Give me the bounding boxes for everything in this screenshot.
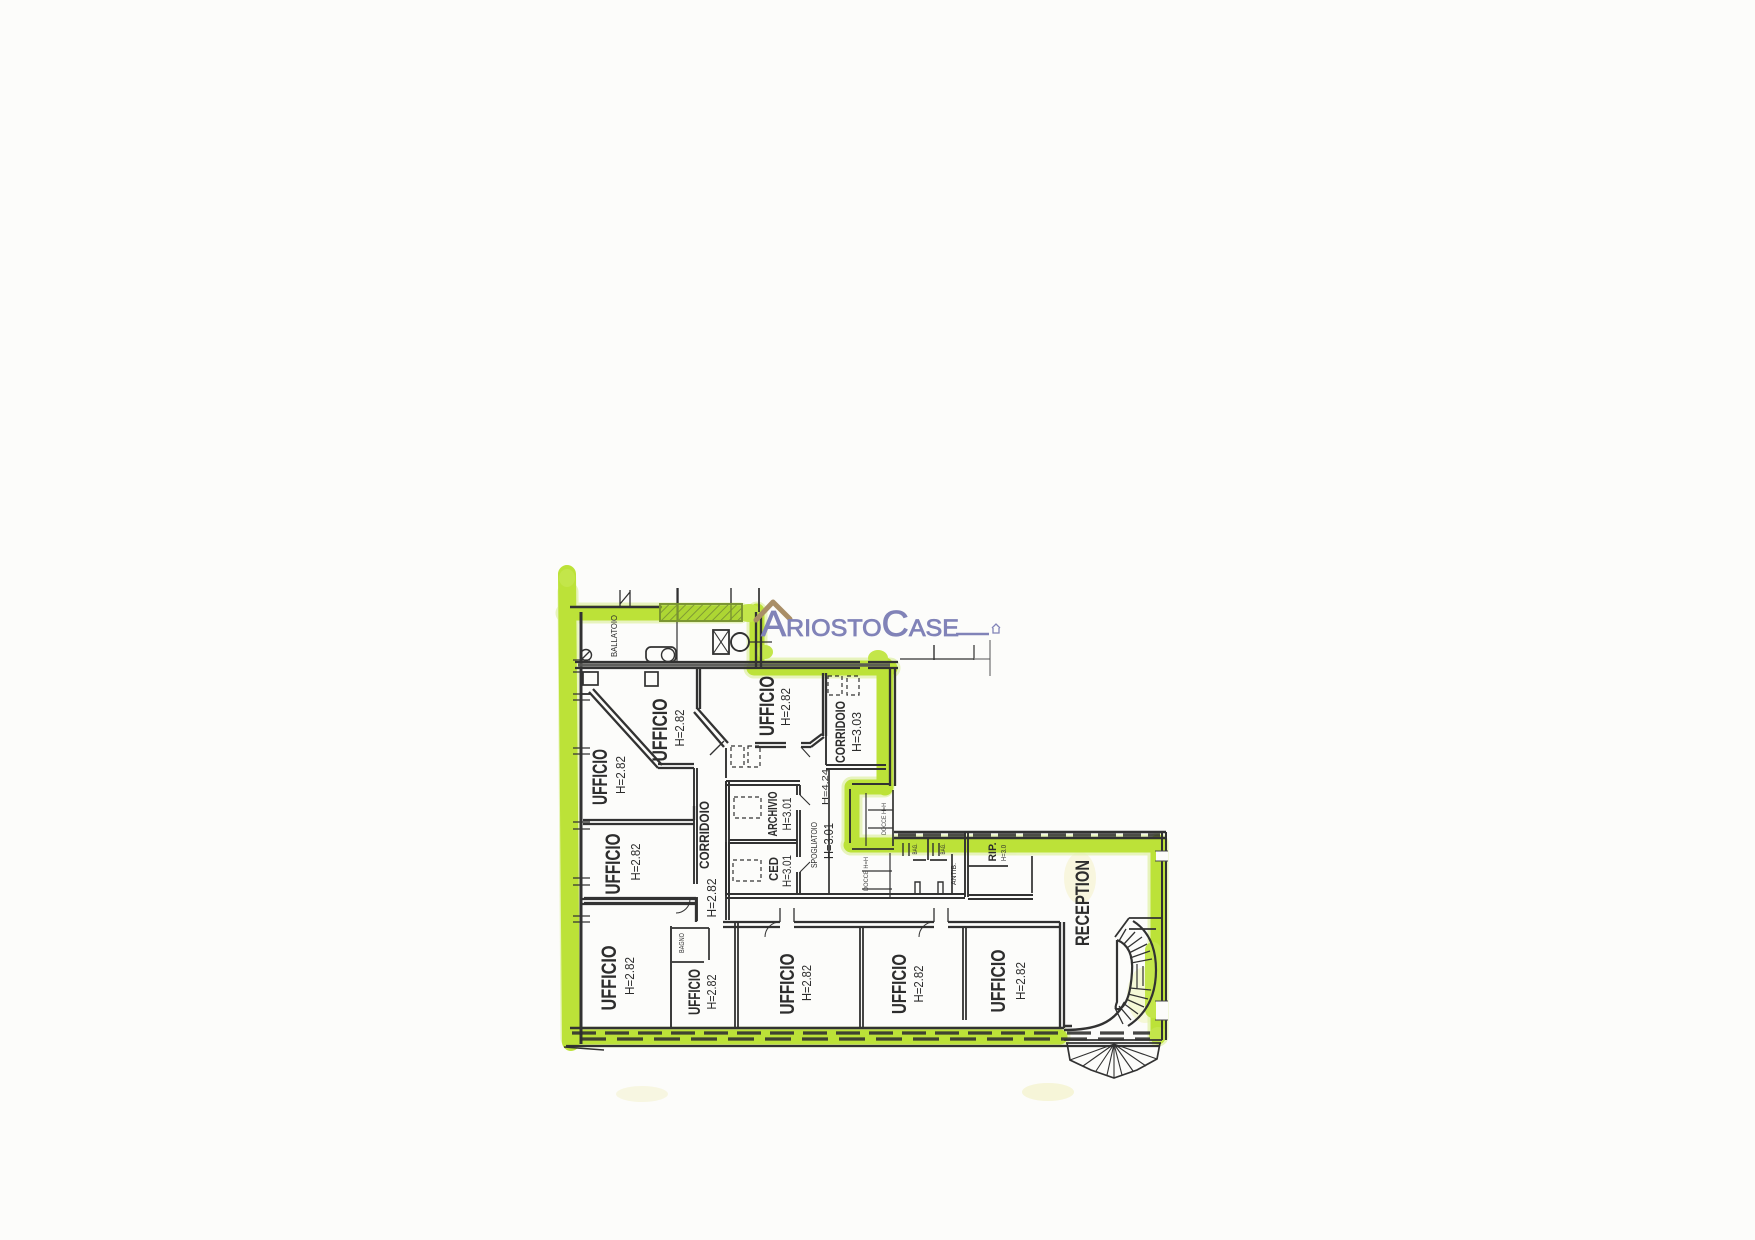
svg-text:H=2.82: H=2.82 (672, 710, 687, 747)
svg-text:H=3.0: H=3.0 (1001, 845, 1008, 861)
svg-text:H=2.82: H=2.82 (1013, 962, 1028, 1000)
svg-text:UFFICIO: UFFICIO (649, 699, 672, 762)
svg-text:H=3.03: H=3.03 (849, 712, 864, 752)
svg-text:CED: CED (766, 857, 781, 881)
svg-text:RIP.: RIP. (987, 843, 999, 862)
svg-text:DOCCE H=H: DOCCE H=H (882, 803, 888, 835)
svg-text:H=3.01: H=3.01 (780, 855, 794, 887)
svg-text:UFFICIO: UFFICIO (756, 676, 779, 736)
svg-text:H=2.82: H=2.82 (911, 966, 926, 1003)
svg-text:UFFICIO: UFFICIO (602, 834, 625, 895)
svg-text:H=2.82: H=2.82 (704, 879, 719, 918)
svg-text:H=3.01: H=3.01 (821, 823, 836, 859)
svg-text:BAGNO: BAGNO (679, 933, 686, 953)
svg-text:BAG.: BAG. (913, 843, 919, 854)
svg-text:UFFICIO: UFFICIO (589, 749, 612, 805)
svg-text:ANTIB.: ANTIB. (951, 863, 958, 885)
svg-text:H=2.82: H=2.82 (704, 975, 719, 1010)
svg-text:H=2.82: H=2.82 (613, 756, 628, 794)
svg-text:H=4.24: H=4.24 (821, 768, 830, 805)
svg-text:CORRIDOIO: CORRIDOIO (696, 801, 712, 869)
svg-text:UFFICIO: UFFICIO (685, 969, 704, 1015)
svg-text:BAG.: BAG. (941, 843, 947, 854)
svg-text:DOCCE H=H: DOCCE H=H (864, 857, 870, 891)
svg-text:UFFICIO: UFFICIO (889, 954, 911, 1014)
svg-text:BALLATOIO: BALLATOIO (609, 615, 619, 657)
svg-text:UFFICIO: UFFICIO (777, 954, 799, 1015)
svg-text:SPOGLIATOIO: SPOGLIATOIO (810, 822, 819, 868)
svg-text:UFFICIO: UFFICIO (598, 946, 621, 1011)
svg-text:CORRIDOIO: CORRIDOIO (832, 701, 848, 763)
svg-text:UFFICIO: UFFICIO (988, 950, 1010, 1013)
svg-text:H=3.01: H=3.01 (780, 797, 794, 830)
svg-text:H=2.82: H=2.82 (799, 965, 814, 1001)
svg-text:H=2.82: H=2.82 (628, 844, 643, 881)
svg-text:RECEPTION: RECEPTION (1073, 860, 1094, 946)
svg-text:H=2.82: H=2.82 (778, 688, 793, 726)
svg-text:ARCHIVIO: ARCHIVIO (765, 792, 780, 837)
svg-text:H=2.82: H=2.82 (622, 957, 637, 995)
